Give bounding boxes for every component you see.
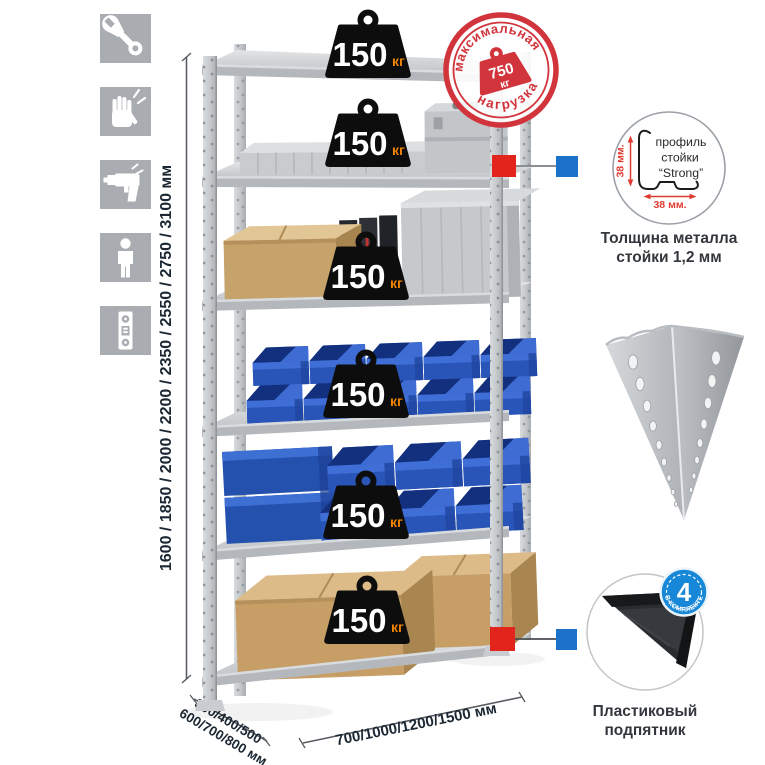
load-badge-value: 150 <box>330 497 385 534</box>
load-badge-value: 150 <box>332 125 387 162</box>
kit-count-value: 4 <box>677 577 692 607</box>
profile-dim-horizontal: 38 мм. <box>653 199 686 211</box>
assembly-icon-tile <box>100 306 151 355</box>
load-badge-1: 150 кг <box>325 13 411 79</box>
assembly-icon-tile <box>99 12 151 63</box>
load-badge-unit: кг <box>392 142 405 158</box>
infographic-svg: 1600 / 1850 / 2000 / 2200 / 2350 / 2550 … <box>0 0 765 765</box>
profile-detail: 38 мм. 38 мм. профиль стойки “Strong” То… <box>601 112 738 266</box>
level-icon <box>119 312 133 350</box>
load-badge-value: 150 <box>332 36 387 73</box>
load-badge-value: 150 <box>330 258 385 295</box>
load-badge-value: 150 <box>330 376 385 413</box>
load-badge-unit: кг <box>390 514 403 530</box>
load-badge-unit: кг <box>390 275 403 291</box>
profile-callout-connector <box>492 155 578 177</box>
load-badge-unit: кг <box>392 53 405 69</box>
profile-label-1: профиль <box>656 135 707 149</box>
width-dimension: 700/1000/1200/1500 мм <box>299 692 525 749</box>
foot-callout-connector <box>490 627 577 651</box>
width-dimension-label: 700/1000/1200/1500 мм <box>334 700 498 749</box>
load-badge-value: 150 <box>331 602 386 639</box>
plastic-foot-detail: 4 В КОМПЛЕКТЕ Пластиковый подпятник <box>587 569 708 740</box>
marker-red-bottom <box>490 627 515 651</box>
corner-post-image <box>606 326 744 520</box>
assembly-icon-tile <box>100 160 151 209</box>
height-dimension-label: 1600 / 1850 / 2000 / 2200 / 2350 / 2550 … <box>158 165 175 571</box>
product-infographic: 1600 / 1850 / 2000 / 2200 / 2350 / 2550 … <box>0 0 765 765</box>
assembly-icon-tile <box>100 233 151 282</box>
profile-label-2: стойки <box>661 151 699 165</box>
profile-caption-2: стойки 1,2 мм <box>616 249 721 266</box>
profile-label-3: “Strong” <box>659 166 703 180</box>
assembly-icon-tile <box>100 87 151 136</box>
marker-red-top <box>492 155 516 177</box>
height-dimension: 1600 / 1850 / 2000 / 2200 / 2350 / 2550 … <box>158 53 191 683</box>
kit-count-badge: 4 В КОМПЛЕКТЕ <box>661 569 708 616</box>
marker-blue-top <box>556 156 578 177</box>
assembly-icons <box>99 12 151 355</box>
profile-dim-vertical: 38 мм. <box>615 144 627 177</box>
foot-caption-2: подпятник <box>604 722 685 739</box>
load-badge-2: 150 кг <box>325 102 411 168</box>
load-badge-unit: кг <box>390 393 403 409</box>
load-badge-unit: кг <box>391 619 404 635</box>
foot-caption-1: Пластиковый <box>593 703 698 720</box>
profile-caption-1: Толщина металла <box>601 230 738 247</box>
marker-blue-bottom <box>556 629 577 650</box>
